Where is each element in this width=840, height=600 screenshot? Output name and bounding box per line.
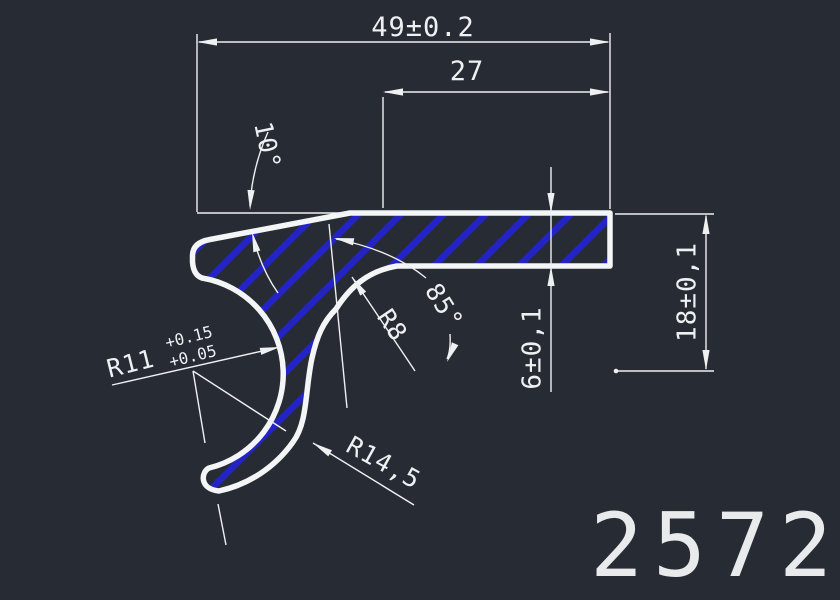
dim-flange-width: 27 xyxy=(450,56,485,87)
cad-drawing: 49±0.2 27 10° 85° R8 R14,5 R11 xyxy=(0,0,840,600)
cad-drawing-canvas: 49±0.2 27 10° 85° R8 R14,5 R11 xyxy=(0,0,840,600)
dim-overall-height: 18±0,1 xyxy=(673,242,703,342)
dim-overall-width: 49±0.2 xyxy=(371,12,475,43)
part-number: 2572 xyxy=(590,494,840,597)
ext-line-dot xyxy=(614,369,619,374)
dim-flange-thickness: 6±0,1 xyxy=(518,306,548,389)
